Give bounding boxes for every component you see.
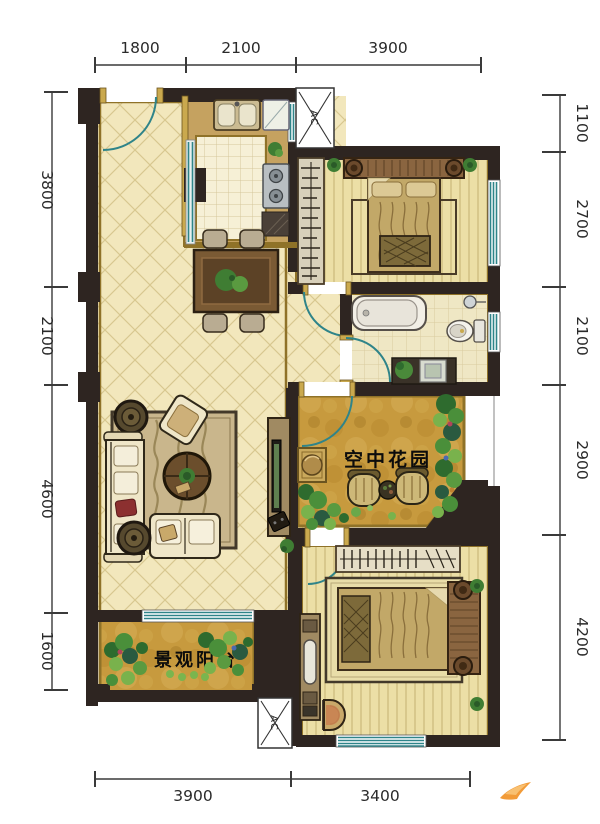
stove (263, 164, 289, 208)
kitchen-sink (214, 100, 260, 130)
kitchen-tile (196, 136, 266, 240)
dimension-top: 1800 2100 3900 (95, 39, 481, 73)
floor-speaker (118, 522, 150, 554)
bathtub (352, 296, 426, 330)
sofa-pillow (115, 499, 137, 518)
bedroom2-window (336, 735, 426, 747)
vanity (392, 358, 456, 384)
bedroom1-window (488, 180, 500, 266)
loveseat (150, 514, 220, 558)
dim-right-2: 2700 (573, 199, 591, 238)
desk-mirror (304, 640, 316, 684)
bedroom2-desk (300, 614, 320, 720)
dining-chair (240, 314, 264, 332)
floor-plan-page: AC AC (0, 0, 600, 824)
bed2-cushion (342, 596, 370, 662)
bedroom2-stool (322, 700, 345, 730)
refrigerator (263, 100, 289, 130)
dining-chair (203, 314, 227, 332)
dim-bottom-1: 3900 (173, 787, 212, 805)
ac-top-label: AC (308, 110, 319, 126)
sky-garden-opening (488, 396, 500, 486)
balcony-window (142, 610, 254, 622)
ac-unit-bottom: AC (258, 698, 292, 748)
dim-left-3: 4600 (38, 479, 56, 518)
bedroom2-wardrobe (336, 546, 460, 572)
dim-top-3: 3900 (368, 39, 407, 57)
bed2 (338, 581, 480, 675)
pillow (372, 182, 402, 197)
bedroom1-wardrobe (298, 158, 324, 284)
garden-table (379, 481, 397, 499)
dim-right-3: 2100 (573, 316, 591, 355)
coffee-table (164, 453, 210, 499)
dim-left-2: 2100 (38, 316, 56, 355)
dim-left-4: 1600 (38, 631, 56, 670)
floor-speaker (115, 401, 147, 433)
dim-right-5: 4200 (573, 617, 591, 656)
dining-chair (203, 230, 227, 248)
dimension-left: 3800 2100 4600 1600 (38, 92, 68, 690)
dim-top-1: 1800 (120, 39, 159, 57)
kitchen-mat (262, 212, 289, 236)
garden-chair (396, 468, 428, 504)
dimension-right: 1100 2700 2100 2900 4200 (542, 95, 591, 740)
garden-wall-basin (298, 448, 326, 482)
dim-top-2: 2100 (221, 39, 260, 57)
dim-left-1: 3800 (38, 170, 56, 209)
dimension-bottom: 3900 3400 (95, 771, 470, 805)
floor-plan-drawing: AC AC (0, 0, 600, 824)
dim-right-4: 2900 (573, 440, 591, 479)
pillow (406, 182, 436, 197)
kitchen-glass-partition (186, 140, 195, 244)
dining-chair (240, 230, 264, 248)
ac-bottom-label: AC (268, 715, 279, 731)
ac-unit-top: AC (296, 88, 334, 148)
tv-cabinet (267, 418, 290, 536)
brand-logo-swoosh (500, 782, 531, 800)
garden-chair (348, 470, 380, 506)
dim-bottom-2: 3400 (360, 787, 399, 805)
bed1-bench (380, 236, 430, 266)
dim-right-1: 1100 (573, 103, 591, 142)
toilet (447, 320, 485, 342)
bathroom-window (488, 312, 500, 352)
